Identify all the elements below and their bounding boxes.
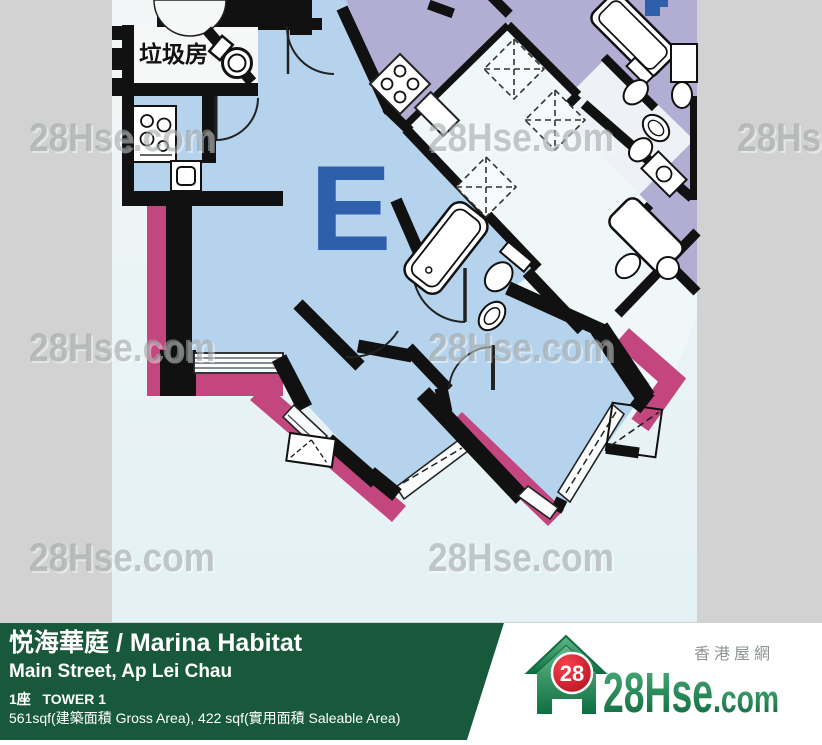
svg-text:E: E [310, 140, 391, 276]
svg-text:28Hse.com: 28Hse.com [737, 116, 822, 160]
svg-text:28Hse.com: 28Hse.com [29, 326, 215, 370]
svg-text:28Hse: 28Hse [603, 661, 713, 725]
svg-text:28Hse.com: 28Hse.com [29, 536, 215, 580]
svg-text:1座 TOWER 1: 1座 TOWER 1 [9, 691, 106, 707]
svg-text:垃圾房: 垃圾房 [139, 41, 208, 67]
svg-text:28Hse.com: 28Hse.com [29, 116, 215, 160]
svg-text:Main Street, Ap Lei Chau: Main Street, Ap Lei Chau [9, 661, 232, 682]
svg-text:.com: .com [713, 679, 779, 721]
svg-text:28Hse.com: 28Hse.com [428, 326, 614, 370]
svg-text:28Hse.com: 28Hse.com [428, 116, 614, 160]
svg-text:悦海華庭 / Marina Habitat: 悦海華庭 / Marina Habitat [9, 628, 303, 657]
svg-text:28Hse.com: 28Hse.com [428, 536, 614, 580]
svg-text:561sqf(建築面積 Gross Area), 422 s: 561sqf(建築面積 Gross Area), 422 sqf(實用面積 Sa… [9, 710, 400, 726]
svg-text:28: 28 [560, 661, 584, 686]
